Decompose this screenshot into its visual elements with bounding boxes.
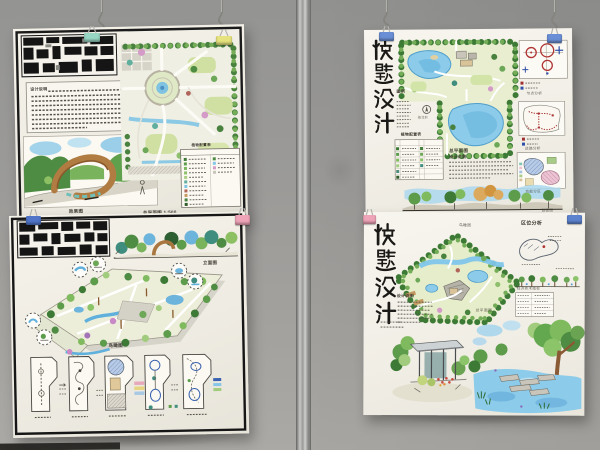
- zoning-diagram: [517, 152, 565, 188]
- notes-title: 设计说明: [30, 87, 47, 91]
- waterscape-sketch: [468, 319, 584, 413]
- title-calligraphy: [375, 224, 396, 323]
- nodes-caption: 节点分析: [527, 92, 543, 96]
- binder-clip-blue-tr1: [379, 27, 394, 41]
- indicators-title: 经济技术指标: [517, 288, 540, 292]
- binder-clip-blue-tr2: [547, 29, 562, 43]
- zoning-caption: 功能分区: [525, 190, 541, 194]
- author-lines: [381, 322, 405, 327]
- analysis-diagram: [69, 356, 104, 417]
- indicators-table: [516, 293, 554, 317]
- analysis-diagram: [183, 354, 222, 415]
- road-analysis-diagram-box: [519, 101, 565, 135]
- planting-strip: [516, 269, 580, 287]
- notes-title: 设计说明: [397, 294, 414, 298]
- road-caption: 道路分析: [525, 147, 541, 151]
- elevation-caption: 立面图: [203, 261, 217, 266]
- binder-clip-pink-right: [363, 210, 376, 224]
- plant-table-title: 植物配置表: [401, 134, 422, 138]
- legend-title: 植物配置表: [191, 144, 211, 148]
- aluminum-pole: [296, 0, 311, 450]
- plant-legend-table: [181, 148, 241, 207]
- north-caption: 指北针: [418, 116, 428, 119]
- analysis-diagrams: [31, 354, 222, 418]
- binder-clip-yellow: [216, 30, 232, 45]
- wall-smudge: [325, 150, 355, 190]
- elevation-strip: [113, 230, 237, 258]
- birdseye-caption: 鸟瞰图: [459, 224, 471, 228]
- poster-bottom-right: 快题设计: [363, 212, 585, 416]
- binder-clip-mint: [84, 27, 100, 42]
- design-notes: [449, 162, 513, 179]
- master-plan-caption: 总平面图: [449, 149, 468, 154]
- binder-clip-blue-left: [26, 210, 41, 225]
- master-plan: [396, 234, 520, 324]
- analysis-diagram: [145, 355, 179, 416]
- title-calligraphy: [373, 40, 393, 133]
- node-analysis-diagram: [519, 40, 567, 78]
- legend-list: [397, 102, 411, 127]
- location-analysis-sketch: [520, 237, 562, 265]
- poster-bottom-left: 立面图 鸟瞰图: [9, 211, 249, 437]
- legend-title: 图例: [397, 90, 406, 94]
- node-analysis-legend: [520, 81, 540, 89]
- notes-title: 设计说明: [449, 155, 466, 159]
- analysis-diagram: [105, 355, 145, 416]
- location-caption: 区位分析: [521, 222, 542, 227]
- master-plan-caption: 总平面图: [476, 309, 492, 313]
- binder-clip-blue-right: [567, 209, 582, 224]
- plant-table: [395, 139, 443, 179]
- photo-of-posters: 植物配置表 设计说明 效果图 总平面图 1:500: [0, 0, 600, 450]
- analysis-diagram: [31, 357, 67, 418]
- poster-top-right: 快题设计: [364, 28, 574, 216]
- figure-ground-plan: [21, 34, 117, 77]
- north-arrow-icon: [423, 105, 431, 113]
- axonometric-caption: 鸟瞰图: [108, 344, 122, 349]
- poster-top-left: 植物配置表 设计说明 效果图 总平面图 1:500: [13, 24, 248, 226]
- binder-clip-pink-left: [235, 209, 250, 225]
- pavilion-sketch: [390, 336, 472, 402]
